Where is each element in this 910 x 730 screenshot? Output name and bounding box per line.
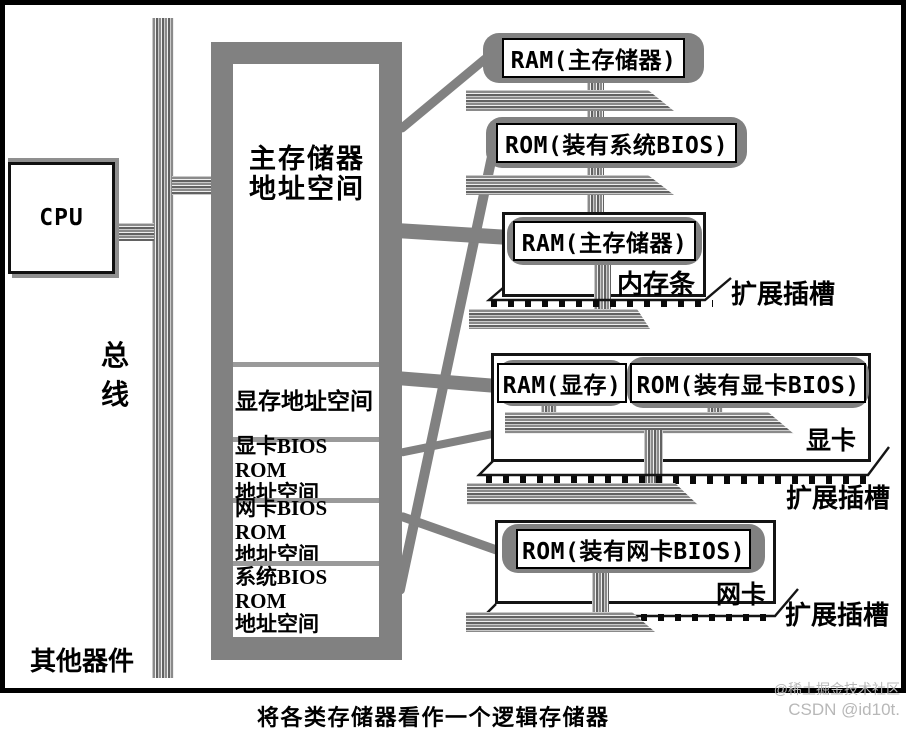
other-devices-label: 其他器件: [30, 641, 134, 678]
bus-band-memory-stick: [469, 309, 650, 329]
bus-label-char1: 总: [101, 341, 129, 372]
section-video-bios-line1: 显卡BIOS ROM: [235, 435, 379, 482]
video-card-slot: [476, 444, 892, 477]
ram-main-chip-bubble: RAM(主存储器): [507, 217, 702, 265]
expansion-slot-label-2: 扩展插槽: [786, 478, 890, 515]
bus-band-video-card: [467, 483, 698, 505]
section-system-bios-line1: 系统BIOS ROM: [235, 566, 379, 613]
figure-caption: 将各类存储器看作一个逻辑存储器: [257, 700, 610, 730]
ram-video-bubble: RAM(显存): [497, 360, 627, 406]
memory-architecture-diagram: CPU 总 线 其他器件 主存储器 地址空间 显存地址空间 显卡BIOS ROM…: [0, 0, 910, 730]
ram-main-chip-label: RAM(主存储器): [513, 221, 697, 261]
watermark-line2: CSDN @id10t.: [774, 699, 900, 720]
bus-label-char2: 线: [101, 380, 129, 411]
cpu-bus-link: [112, 223, 154, 241]
rom-system-bios-bubble: ROM(装有系统BIOS): [486, 117, 747, 168]
bus-label: 总 线: [97, 337, 133, 415]
rom-video-bios-label: ROM(装有显卡BIOS): [630, 363, 865, 403]
address-space-sections: 主存储器 地址空间 显存地址空间 显卡BIOS ROM 地址空间 网卡BIOS …: [233, 64, 379, 637]
ram-video-label: RAM(显存): [497, 363, 628, 403]
memory-stick-slot: [487, 276, 735, 303]
section-video-memory: 显存地址空间: [233, 367, 379, 438]
expansion-slot-label-3: 扩展插槽: [785, 595, 889, 632]
section-video-memory-line1: 显存地址空间: [235, 389, 379, 415]
expansion-slot-label-1: 扩展插槽: [731, 274, 835, 311]
rom-net-bios-bubble: ROM(装有网卡BIOS): [502, 524, 765, 573]
section-net-bios: 网卡BIOS ROM 地址空间: [233, 503, 379, 561]
bus-band-network-card: [466, 612, 655, 632]
section-video-bios: 显卡BIOS ROM 地址空间: [233, 442, 379, 498]
section-main-memory-line2: 地址空间: [249, 174, 365, 204]
rom-system-bios-label: ROM(装有系统BIOS): [496, 123, 737, 163]
memory-stick-slot-pins: [491, 300, 713, 307]
rom-net-bios-label: ROM(装有网卡BIOS): [516, 529, 751, 569]
system-bus: [152, 18, 174, 678]
cpu-label: CPU: [39, 205, 84, 231]
ram-main-bubble-label: RAM(主存储器): [502, 38, 686, 78]
section-net-bios-line1: 网卡BIOS ROM: [235, 497, 379, 544]
section-main-memory: 主存储器 地址空间: [233, 64, 379, 362]
section-system-bios-line2: 地址空间: [235, 613, 379, 637]
watermark: @稀土掘金技术社区 CSDN @id10t.: [774, 681, 900, 720]
section-main-memory-line1: 主存储器: [249, 144, 365, 174]
address-space-box: 主存储器 地址空间 显存地址空间 显卡BIOS ROM 地址空间 网卡BIOS …: [211, 42, 402, 660]
ram-main-bubble: RAM(主存储器): [483, 33, 704, 83]
rom-video-bios-bubble: ROM(装有显卡BIOS): [627, 357, 869, 408]
watermark-line1: @稀土掘金技术社区: [774, 681, 900, 699]
section-system-bios: 系统BIOS ROM 地址空间: [233, 566, 379, 637]
cpu-box: CPU: [8, 162, 115, 274]
memmap-bus-link: [172, 176, 213, 195]
